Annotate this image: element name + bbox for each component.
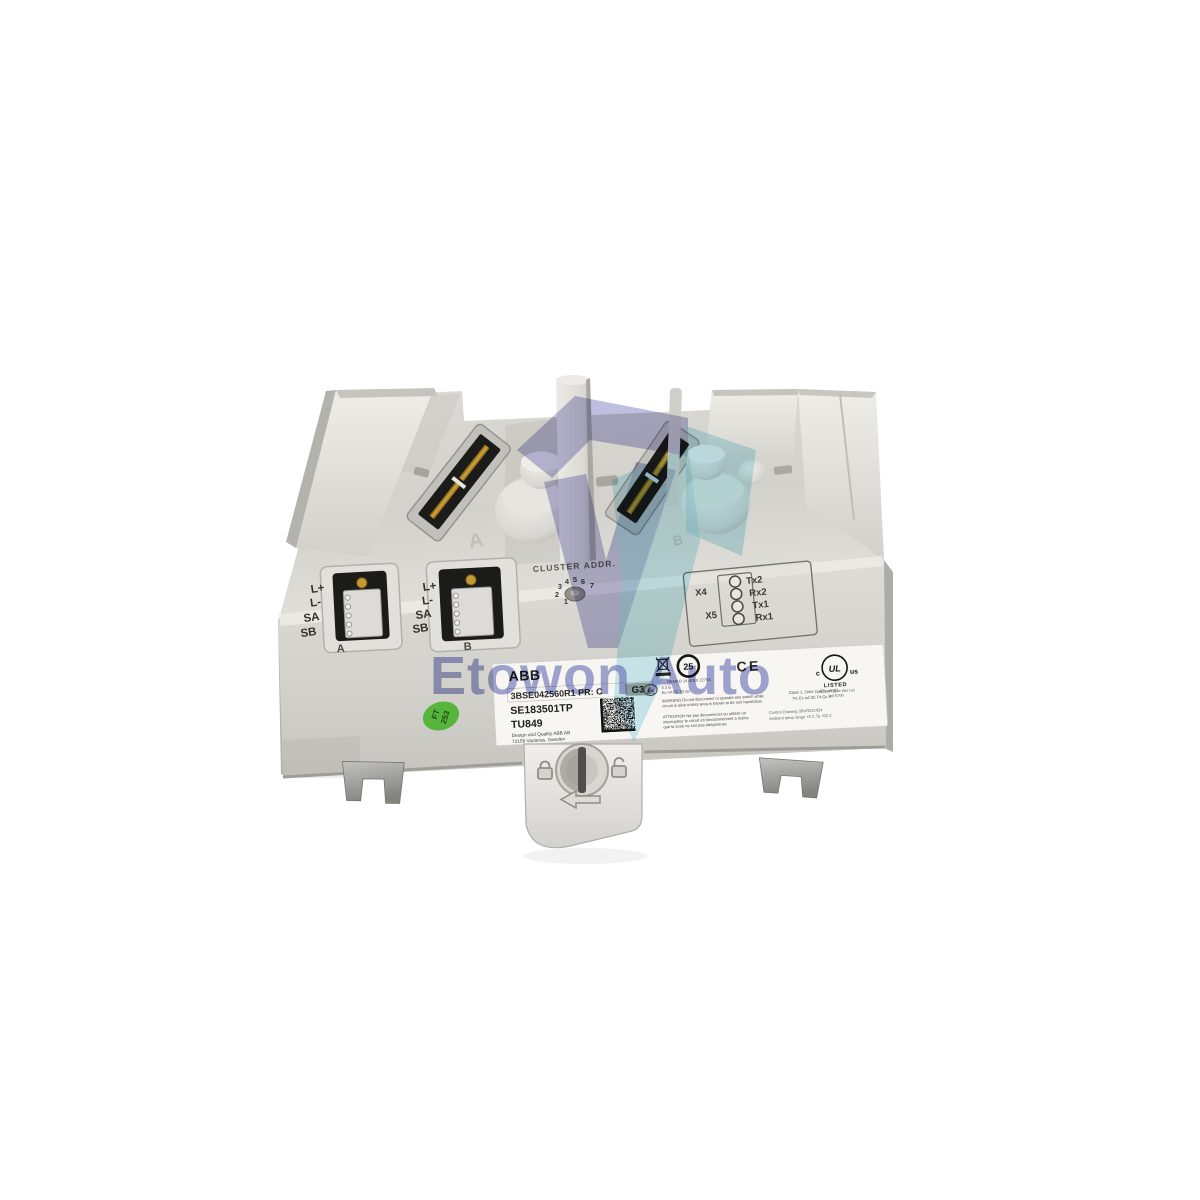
pin — [347, 631, 352, 636]
clip-shadow — [523, 848, 647, 864]
ul-c: c — [816, 670, 820, 677]
watermark-text: Etowon Auto — [430, 646, 772, 706]
pin — [453, 593, 458, 598]
pin — [453, 602, 458, 607]
led-panel-x5-label: X5 — [705, 610, 718, 622]
ul-us: us — [850, 668, 859, 675]
led-label-rx2: Rx2 — [749, 587, 767, 600]
terminal-b-pin-sb: SB — [412, 622, 429, 636]
gold-socket — [357, 578, 368, 589]
led-label-rx1: Rx1 — [755, 611, 774, 624]
terminal-a-pin-sa: SA — [303, 611, 320, 625]
cluster-digit-2: 2 — [555, 590, 559, 599]
cluster-digit-3: 3 — [558, 582, 562, 591]
cluster-digit-1: 1 — [564, 597, 568, 606]
led-label-tx1: Tx1 — [752, 599, 770, 612]
terminal-a-pin-lminus: L- — [309, 596, 322, 609]
terminal-b-pin-lminus: L- — [421, 594, 434, 607]
pin — [455, 629, 460, 634]
model-number: TU849 — [511, 718, 543, 732]
pin — [454, 620, 459, 625]
terminal-a-pin-lplus: L+ — [310, 582, 326, 596]
terminal-b-pin-sa: SA — [415, 608, 432, 622]
terminal-block-b — [426, 558, 521, 653]
led-panel-frame — [683, 561, 818, 647]
terminal-a-letter: A — [336, 643, 345, 656]
background-gap-left — [464, 386, 556, 420]
wall-top-edge — [712, 389, 800, 396]
led-panel-x4-label: X4 — [695, 587, 708, 599]
product-photo-canvas: A B L+ L- SA SB A — [0, 0, 1200, 1200]
led-rx1 — [733, 613, 745, 625]
led-rx2 — [730, 588, 742, 600]
pin — [345, 604, 350, 609]
led-tx2 — [729, 576, 741, 588]
led-label-tx2: Tx2 — [746, 574, 763, 587]
terminal-b-pin-lplus: L+ — [422, 580, 438, 594]
gold-socket — [466, 575, 477, 586]
pin — [345, 595, 350, 600]
terminal-a-pin-sb: SB — [300, 626, 317, 640]
clip-rotary-slot — [578, 747, 586, 793]
abb-tu849-product-photo: A B L+ L- SA SB A — [0, 0, 1200, 1200]
pin — [346, 613, 351, 618]
led-panel: X4 X5 Tx2 Rx2 Tx1 Rx1 — [683, 561, 818, 647]
led-tx1 — [731, 600, 743, 612]
post-top — [556, 375, 590, 385]
terminal-block-a — [320, 563, 402, 653]
pin — [346, 622, 351, 627]
ul-monogram: UL — [828, 663, 840, 674]
pin — [454, 611, 459, 616]
ul-sub-line-2: List E200 — [828, 693, 843, 698]
